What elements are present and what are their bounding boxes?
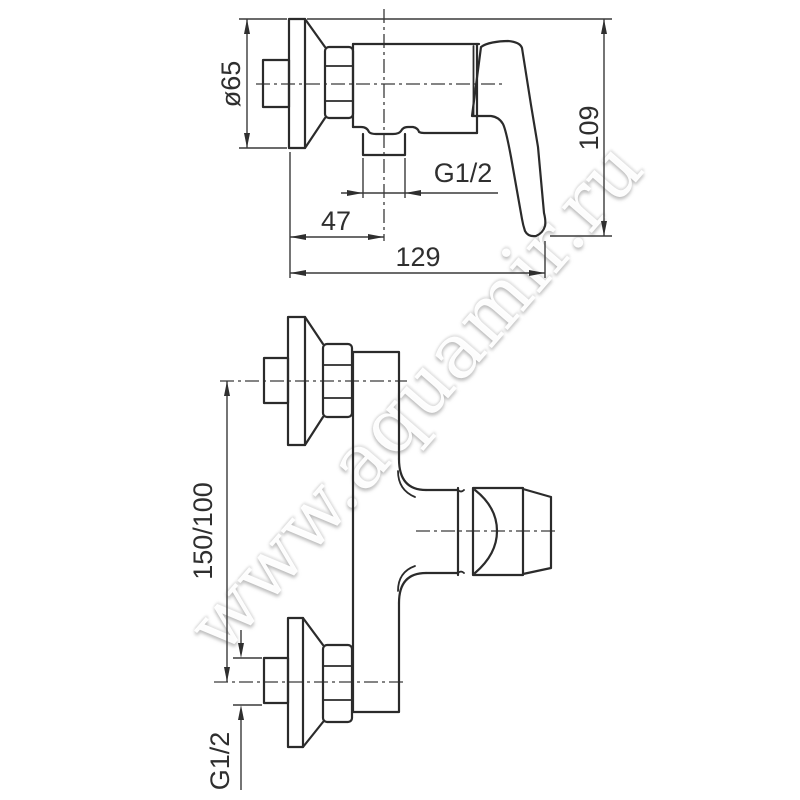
front-upper-fillet	[399, 459, 426, 490]
side-hex-nut	[325, 47, 353, 118]
front-view-dimensions: 150/100 G1/2	[188, 381, 262, 790]
side-body-bottom	[353, 127, 477, 134]
front-lower-fillet	[399, 573, 426, 603]
front-bottom-hex-nut-facets	[323, 666, 352, 700]
dimension-overall-width: 129	[290, 241, 545, 278]
faucet-dimension-drawing: ø65 109 G1/2 47	[0, 0, 800, 800]
label-inlet-thread: G1/2	[205, 732, 235, 791]
front-view	[214, 317, 556, 747]
front-bottom-hex-nut	[323, 645, 352, 722]
dimension-connection-spacing: 150/100	[188, 381, 230, 682]
dimension-wall-to-axis: 47	[290, 152, 384, 278]
label-wall-to-axis: 47	[321, 206, 351, 236]
front-body-plate	[353, 352, 399, 712]
label-connection-spacing: 150/100	[188, 482, 218, 580]
side-view	[256, 9, 545, 241]
front-bottom-inlet-pipe	[264, 658, 288, 703]
side-view-dimensions: ø65 109 G1/2 47	[216, 19, 612, 278]
label-flange-diameter: ø65	[216, 61, 246, 108]
dimension-inlet-thread: G1/2	[205, 630, 262, 790]
technical-drawing-canvas: www.aquamir.ru	[0, 0, 800, 800]
side-lever-handle	[472, 41, 545, 236]
dimension-outlet-thread: G1/2	[341, 158, 498, 198]
label-overall-height: 109	[574, 105, 604, 150]
label-outlet-thread: G1/2	[434, 158, 493, 188]
label-overall-width: 129	[395, 242, 440, 272]
